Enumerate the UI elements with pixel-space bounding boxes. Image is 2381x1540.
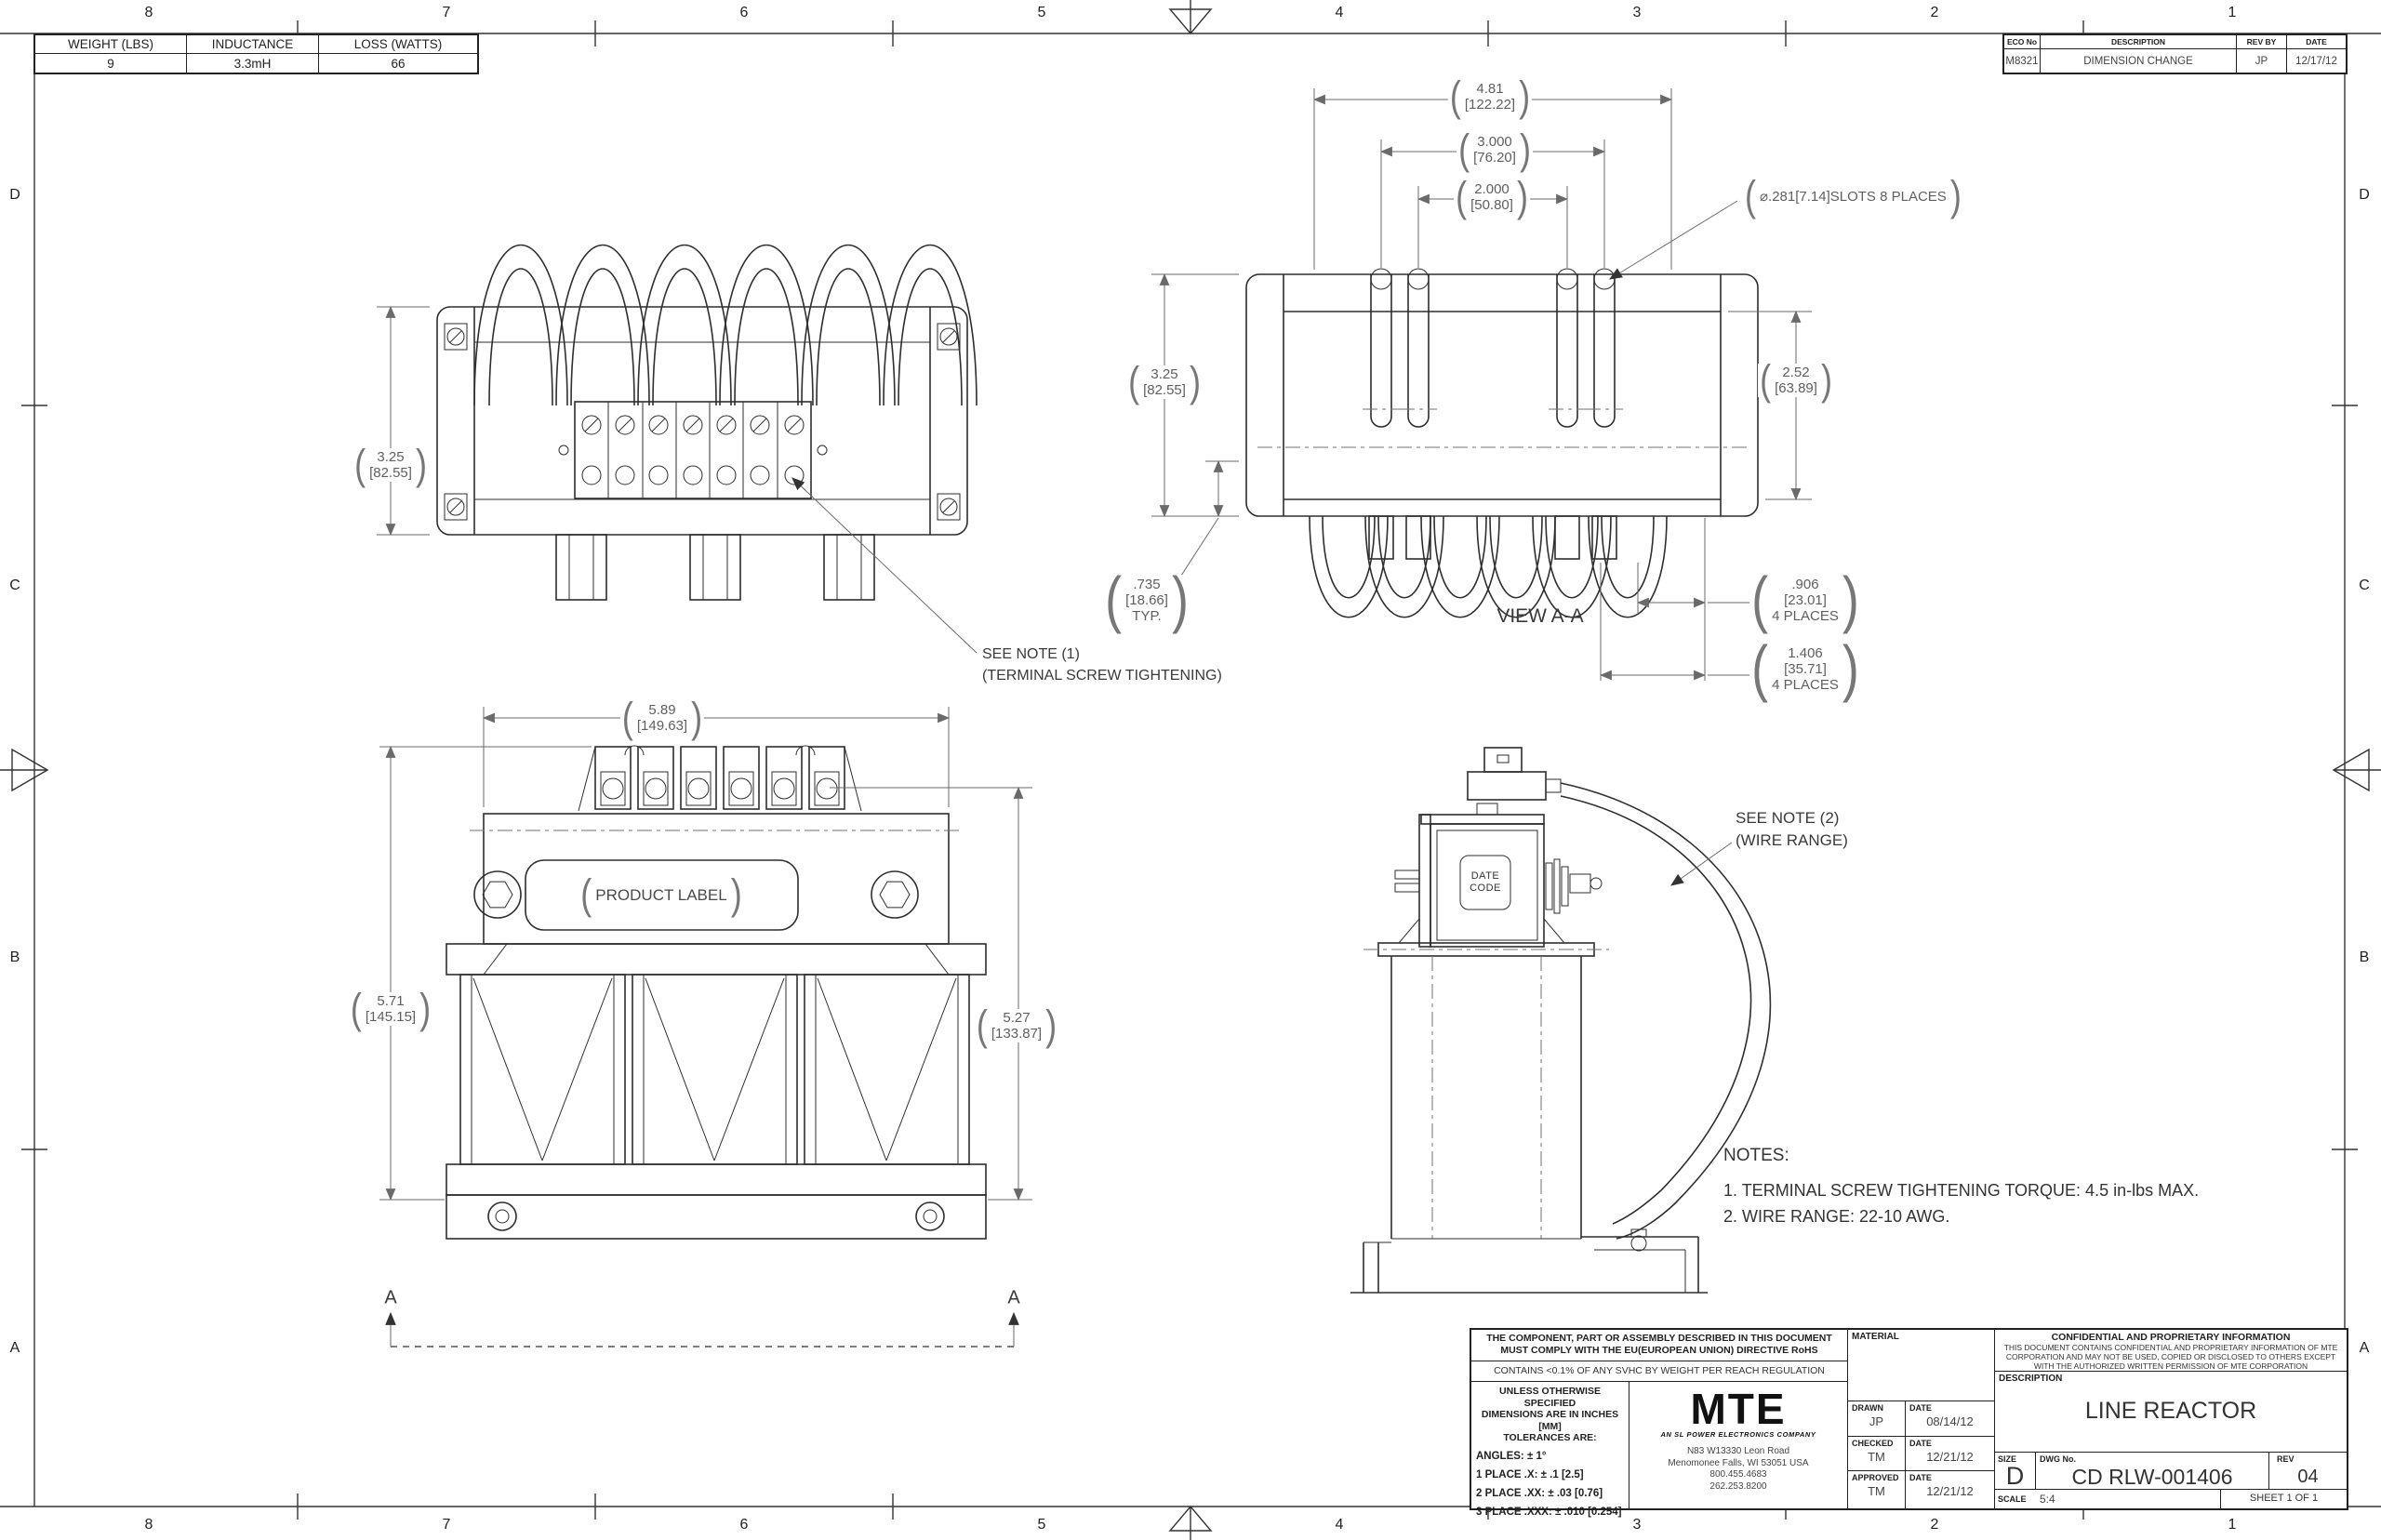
address-line1: N83 W13330 Leon Road <box>1629 1446 1847 1458</box>
zone-col-bottom: 2 <box>1931 1517 1939 1533</box>
zone-col-bottom: 8 <box>145 1517 153 1533</box>
note2-line2: (WIRE RANGE) <box>1736 830 1848 852</box>
zone-row-right: D <box>2359 187 2370 204</box>
tol-2place: 2 PLACE .XX: ± .03 [0.76] <box>1476 1488 1624 1499</box>
eco-header-date: DATE <box>2287 35 2346 49</box>
rohs-line1: THE COMPONENT, PART OR ASSEMBLY DESCRIBE… <box>1471 1333 1847 1345</box>
approved-label: APPROVED <box>1852 1473 1899 1482</box>
approved-cell: APPROVED TM <box>1848 1471 1906 1508</box>
spec-value-inductance: 3.3mH <box>187 54 319 73</box>
approved-date-cell: DATE 12/21/12 <box>1906 1471 1995 1508</box>
eco-value-description: DIMENSION CHANGE <box>2041 49 2237 73</box>
spec-header-weight: WEIGHT (LBS) <box>35 35 187 54</box>
checked-date-label: DATE <box>1909 1439 1932 1448</box>
scale-value: 5:4 <box>2040 1493 2055 1506</box>
mte-logo: MTE <box>1629 1387 1847 1430</box>
address-line2: Menomonee Falls, WI 53051 USA <box>1629 1458 1847 1470</box>
spec-header-inductance: INDUCTANCE <box>187 35 319 54</box>
section-marker-right: A <box>1007 1288 1019 1309</box>
confidential-title: CONFIDENTIAL AND PROPRIETARY INFORMATION <box>1995 1332 2347 1343</box>
drawing-sheet: 8 7 6 5 4 3 2 1 8 7 6 5 4 3 2 1 D C B A … <box>0 0 2381 1540</box>
zone-col-bottom: 7 <box>443 1517 451 1533</box>
rev-value: 04 <box>2269 1467 2347 1488</box>
date-code-label: DATE CODE <box>1470 870 1501 895</box>
spec-header-loss: LOSS (WATTS) <box>319 35 477 54</box>
dim-height-top-view: 3.25[82.55] <box>352 448 429 482</box>
dim-front-height-right: 5.27[133.87] <box>975 1009 1058 1042</box>
scale-cell: SCALE 5:4 <box>1995 1490 2221 1508</box>
section-marker-left: A <box>384 1288 396 1309</box>
zone-row-left: A <box>10 1340 20 1357</box>
material-cell: MATERIAL <box>1848 1330 1995 1401</box>
dim-height-view-aa: 3.25[82.55] <box>1126 365 1203 399</box>
dim-front-width: 5.89[149.63] <box>620 701 704 735</box>
note2-callout: SEE NOTE (2) (WIRE RANGE) <box>1736 807 1848 852</box>
notes-title: NOTES: <box>1723 1146 2199 1166</box>
dim-tab-width: .906[23.01]4 PLACES <box>1749 575 1861 625</box>
zone-col-top: 1 <box>2228 5 2237 21</box>
description-cell: DESCRIPTION LINE REACTOR <box>1995 1372 2347 1453</box>
zone-col-bottom: 3 <box>1633 1517 1642 1533</box>
drawn-cell: DRAWN JP <box>1848 1401 1906 1437</box>
drawn-date-cell: DATE 08/14/12 <box>1906 1401 1995 1437</box>
checked-by: TM <box>1848 1450 1905 1464</box>
dim-slot-span-outer: 3.000[76.20] <box>1457 133 1533 166</box>
eco-value-date: 12/17/12 <box>2287 49 2346 73</box>
approved-date: 12/21/12 <box>1906 1484 1994 1498</box>
company-address: N83 W13330 Leon Road Menomonee Falls, WI… <box>1629 1446 1847 1493</box>
tol-3place: 3 PLACE .XXX: ± .010 [0.254] <box>1476 1507 1624 1518</box>
size-label: SIZE <box>1998 1454 2016 1464</box>
eco-table: ECO No DESCRIPTION REV BY DATE M8321 DIM… <box>2002 33 2348 74</box>
dim-front-height-left: 5.71[145.15] <box>349 992 432 1026</box>
text-overlay: 8 7 6 5 4 3 2 1 8 7 6 5 4 3 2 1 D C B A … <box>0 0 2381 1540</box>
note2-line1: SEE NOTE (2) <box>1736 807 1848 830</box>
note1-line1: SEE NOTE (1) <box>982 644 1222 665</box>
tol-angles: ANGLES: ± 1° <box>1476 1451 1624 1462</box>
slot-callout: ⌀.281[7.14]SLOTS 8 PLACES <box>1743 179 1963 213</box>
title-block: THE COMPONENT, PART OR ASSEMBLY DESCRIBE… <box>1470 1328 2348 1510</box>
drawn-date-label: DATE <box>1909 1403 1932 1413</box>
checked-label: CHECKED <box>1852 1439 1894 1448</box>
dim-slot-span-inner: 2.000[50.80] <box>1454 180 1530 214</box>
date-code-line1: DATE <box>1470 870 1501 883</box>
note1-line2: (TERMINAL SCREW TIGHTENING) <box>982 665 1222 686</box>
zone-col-top: 6 <box>740 5 749 21</box>
tolerance-block: UNLESS OTHERWISE SPECIFIED DIMENSIONS AR… <box>1471 1382 1629 1508</box>
zone-row-right: A <box>2360 1340 2370 1357</box>
zone-col-bottom: 1 <box>2228 1517 2237 1533</box>
dwg-no-value: CD RLW-001406 <box>2036 1465 2268 1490</box>
zone-row-left: B <box>10 949 20 966</box>
checked-date: 12/21/12 <box>1906 1450 1994 1464</box>
confidential-line1: THIS DOCUMENT CONTAINS CONFIDENTIAL AND … <box>1995 1343 2347 1352</box>
dwg-no-cell: DWG No. CD RLW-001406 <box>2036 1453 2269 1490</box>
note-item-1: 1. TERMINAL SCREW TIGHTENING TORQUE: 4.5… <box>1723 1177 2199 1203</box>
eco-header-revby: REV BY <box>2237 35 2287 49</box>
zone-col-bottom: 6 <box>740 1517 749 1533</box>
address-phone1: 800.455.4683 <box>1629 1469 1847 1481</box>
zone-col-bottom: 5 <box>1038 1517 1046 1533</box>
spec-value-weight: 9 <box>35 54 187 73</box>
view-aa-label: VIEW A-A <box>1496 605 1583 628</box>
eco-value-revby: JP <box>2237 49 2287 73</box>
checked-cell: CHECKED TM <box>1848 1437 1906 1471</box>
zone-col-top: 3 <box>1633 5 1642 21</box>
zone-col-top: 8 <box>145 5 153 21</box>
eco-value-no: M8321 <box>2004 49 2041 73</box>
drawn-date: 08/14/12 <box>1906 1414 1994 1428</box>
confidential-block: CONFIDENTIAL AND PROPRIETARY INFORMATION… <box>1995 1330 2347 1372</box>
rev-label: REV <box>2277 1454 2295 1464</box>
description-label: DESCRIPTION <box>1999 1374 2062 1384</box>
note1-callout: SEE NOTE (1) (TERMINAL SCREW TIGHTENING) <box>982 644 1222 686</box>
approved-by: TM <box>1848 1484 1905 1498</box>
rohs-statement: THE COMPONENT, PART OR ASSEMBLY DESCRIBE… <box>1471 1330 1848 1361</box>
dim-core-height: 2.52[63.89] <box>1758 364 1834 397</box>
zone-col-bottom: 4 <box>1336 1517 1344 1533</box>
eco-header-no: ECO No <box>2004 35 2041 49</box>
tol-header-line2: DIMENSIONS ARE IN INCHES [MM] <box>1476 1409 1624 1432</box>
tol-1place: 1 PLACE .X: ± .1 [2.5] <box>1476 1469 1624 1480</box>
scale-label: SCALE <box>1998 1494 2027 1504</box>
rev-cell: REV 04 <box>2269 1453 2347 1490</box>
logo-tagline: AN SL POWER ELECTRONICS COMPANY <box>1629 1430 1847 1439</box>
confidential-line2: CORPORATION AND MAY NOT BE USED, COPIED … <box>1995 1352 2347 1361</box>
address-phone2: 262.253.8200 <box>1629 1481 1847 1494</box>
drawn-label: DRAWN <box>1852 1403 1883 1413</box>
date-code-line2: CODE <box>1470 883 1501 895</box>
dim-tab-spacing: 1.406[35.71]4 PLACES <box>1749 644 1861 694</box>
sheet-cell: SHEET 1 OF 1 <box>2221 1490 2347 1508</box>
eco-header-description: DESCRIPTION <box>2041 35 2237 49</box>
material-label: MATERIAL <box>1852 1332 1899 1342</box>
spec-table: WEIGHT (LBS) INDUCTANCE LOSS (WATTS) 9 3… <box>33 33 479 74</box>
zone-col-top: 5 <box>1038 5 1046 21</box>
product-label: PRODUCT LABEL <box>579 878 743 911</box>
checked-date-cell: DATE 12/21/12 <box>1906 1437 1995 1471</box>
zone-row-right: B <box>2360 949 2370 966</box>
notes-block: NOTES: 1. TERMINAL SCREW TIGHTENING TORQ… <box>1723 1146 2199 1229</box>
dwg-no-label: DWG No. <box>2040 1454 2076 1464</box>
zone-row-right: C <box>2359 577 2370 594</box>
zone-col-top: 7 <box>443 5 451 21</box>
reach-statement: CONTAINS <0.1% OF ANY SVHC BY WEIGHT PER… <box>1471 1361 1848 1382</box>
spec-value-loss: 66 <box>319 54 477 73</box>
size-cell: SIZE D <box>1995 1453 2036 1490</box>
zone-row-left: D <box>9 187 20 204</box>
zone-col-top: 2 <box>1931 5 1939 21</box>
note-item-2: 2. WIRE RANGE: 22-10 AWG. <box>1723 1203 2199 1229</box>
description-value: LINE REACTOR <box>1995 1398 2347 1425</box>
zone-col-top: 4 <box>1336 5 1344 21</box>
company-block: MTE AN SL POWER ELECTRONICS COMPANY N83 … <box>1629 1382 1848 1508</box>
rohs-line2: MUST COMPLY WITH THE EU(EUROPEAN UNION) … <box>1471 1345 1847 1357</box>
dim-overall-width: 4.81[122.22] <box>1448 80 1532 113</box>
confidential-line3: WITH THE AUTHORIZED WRITTEN PERMISSION O… <box>1995 1361 2347 1371</box>
zone-row-left: C <box>9 577 20 594</box>
dim-foot-offset: .735[18.66]TYP. <box>1103 575 1190 625</box>
drawn-by: JP <box>1848 1414 1905 1428</box>
size-value: D <box>1995 1462 2035 1491</box>
notes-list: 1. TERMINAL SCREW TIGHTENING TORQUE: 4.5… <box>1723 1177 2199 1229</box>
approved-date-label: DATE <box>1909 1473 1932 1482</box>
tol-header-line3: TOLERANCES ARE: <box>1476 1432 1624 1444</box>
tol-header-line1: UNLESS OTHERWISE SPECIFIED <box>1476 1386 1624 1409</box>
